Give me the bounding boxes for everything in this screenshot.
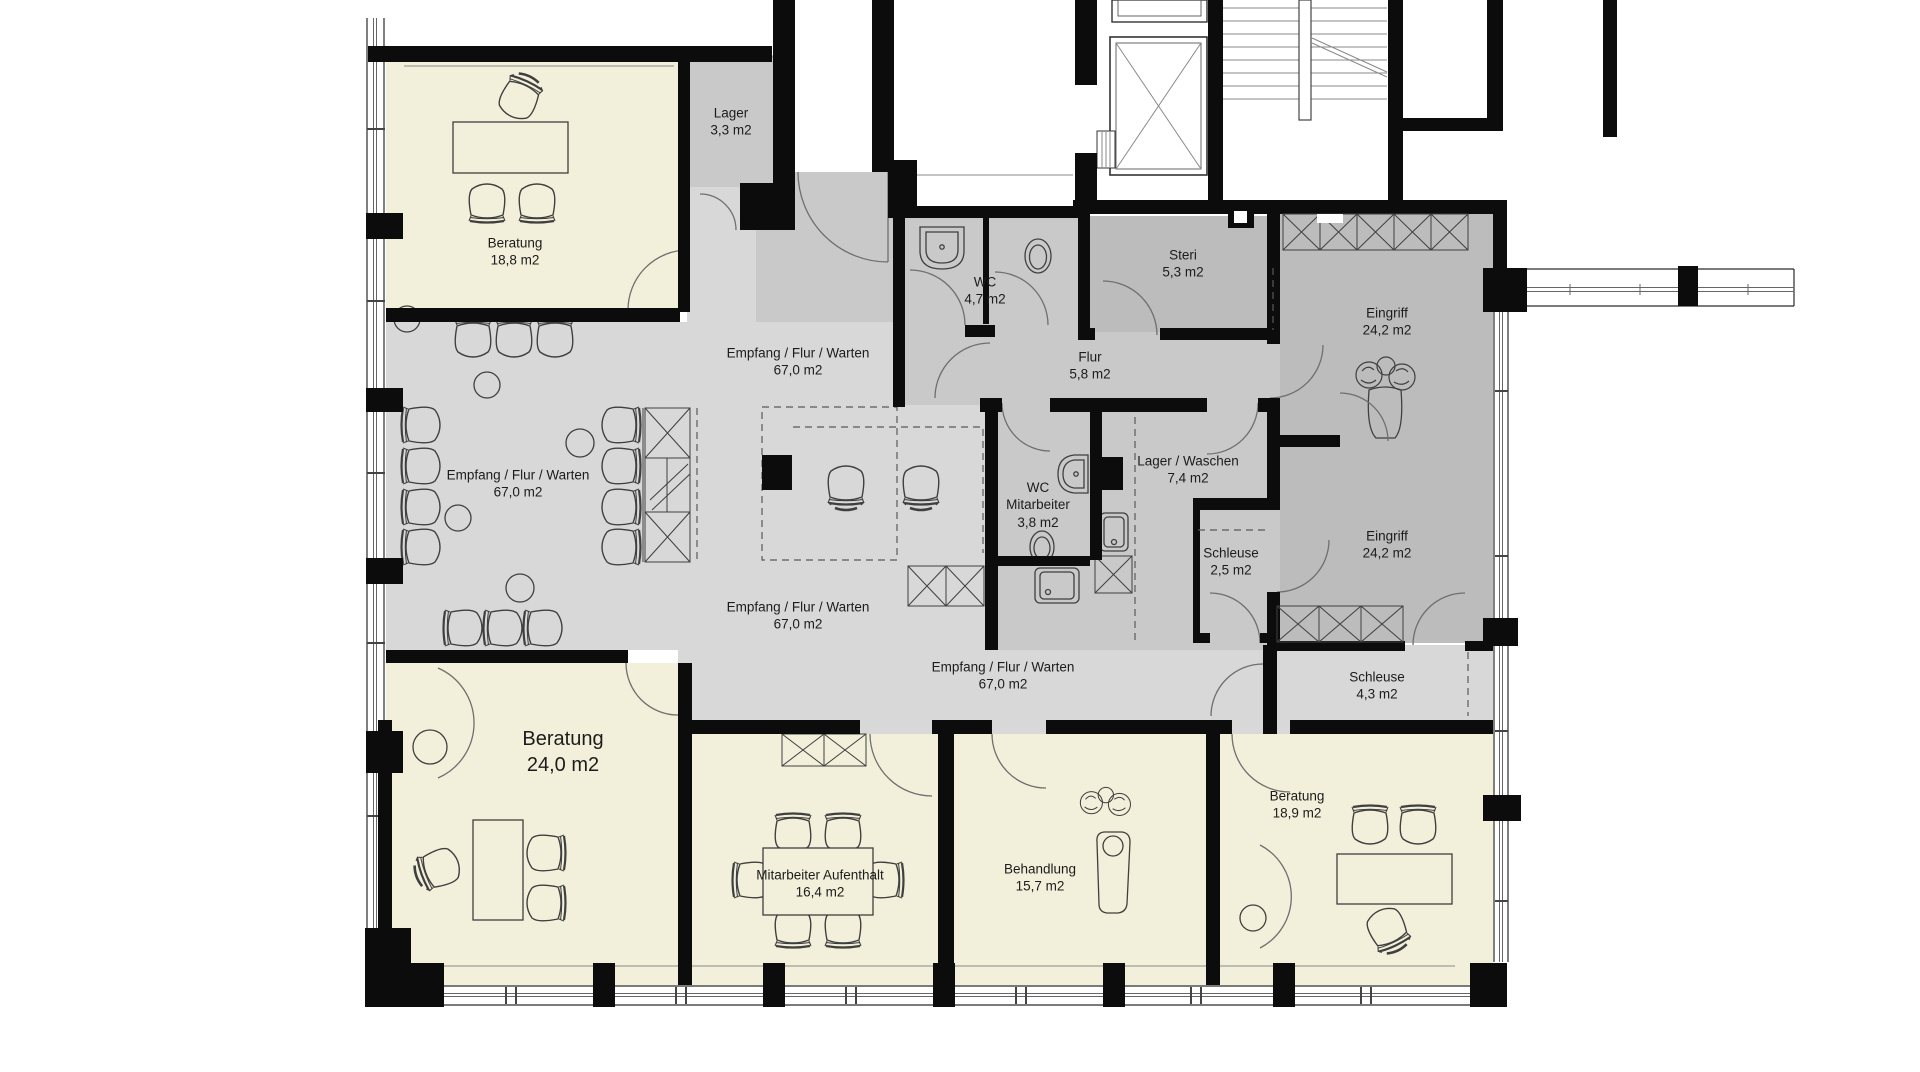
room-name: Eingriff bbox=[1363, 305, 1412, 322]
room-area: 15,7 m2 bbox=[1004, 878, 1076, 895]
room-name: Empfang / Flur / Warten bbox=[447, 467, 590, 484]
room-area: 67,0 m2 bbox=[727, 362, 870, 379]
room-name: Schleuse bbox=[1349, 669, 1405, 686]
staircase bbox=[1223, 0, 1387, 120]
room-area: 18,8 m2 bbox=[488, 252, 543, 269]
room-area: 67,0 m2 bbox=[932, 676, 1075, 693]
elevator bbox=[1097, 0, 1207, 175]
room-label-schleuse-gross: Schleuse 4,3 m2 bbox=[1349, 669, 1405, 704]
room-area: 2,5 m2 bbox=[1203, 562, 1259, 579]
room-name: WC bbox=[1006, 479, 1070, 496]
room-label-steri: Steri 5,3 m2 bbox=[1162, 247, 1203, 282]
room-name: Lager / Waschen bbox=[1137, 453, 1239, 470]
room-label-wc: WC 4,7 m2 bbox=[964, 274, 1005, 309]
room-label-wc-mitarbeiter: WC Mitarbeiter 3,8 m2 bbox=[1006, 479, 1070, 531]
room-label-behandlung: Behandlung 15,7 m2 bbox=[1004, 861, 1076, 896]
room-name: Schleuse bbox=[1203, 545, 1259, 562]
room-area: 24,0 m2 bbox=[522, 752, 603, 778]
room-label-beratung-top: Beratung 18,8 m2 bbox=[488, 235, 543, 270]
room-area: 3,8 m2 bbox=[1006, 514, 1070, 531]
room-name: Beratung bbox=[522, 726, 603, 752]
room-name: Beratung bbox=[488, 235, 543, 252]
room-label-flur: Flur 5,8 m2 bbox=[1069, 349, 1110, 384]
room-area: 24,2 m2 bbox=[1363, 545, 1412, 562]
wc-lobby bbox=[905, 332, 990, 405]
room-name: Empfang / Flur / Warten bbox=[727, 599, 870, 616]
room-area: 5,8 m2 bbox=[1069, 366, 1110, 383]
room-label-beratung-gross: Beratung 24,0 m2 bbox=[522, 726, 603, 778]
room-beratung-top bbox=[386, 62, 678, 310]
room-name: Mitarbeiter Aufenthalt bbox=[756, 867, 884, 884]
room-name: Empfang / Flur / Warten bbox=[932, 659, 1075, 676]
room-name: WC bbox=[964, 274, 1005, 291]
room-label-empfang-center: Empfang / Flur / Warten 67,0 m2 bbox=[727, 599, 870, 634]
room-label-lager-waschen: Lager / Waschen 7,4 m2 bbox=[1137, 453, 1239, 488]
room-area: 16,4 m2 bbox=[756, 884, 884, 901]
room-label-beratung-rechts: Beratung 18,9 m2 bbox=[1270, 788, 1325, 823]
room-area: 5,3 m2 bbox=[1162, 264, 1203, 281]
stair-rail bbox=[1299, 0, 1311, 120]
room-label-lager: Lager 3,3 m2 bbox=[710, 105, 751, 140]
room-area: 24,2 m2 bbox=[1363, 322, 1412, 339]
room-name: Lager bbox=[710, 105, 751, 122]
room-label-empfang-bottom: Empfang / Flur / Warten 67,0 m2 bbox=[932, 659, 1075, 694]
room-behandlung bbox=[952, 734, 1206, 985]
floor-plan: Beratung 18,8 m2 Lager 3,3 m2 Empfang / … bbox=[0, 0, 1920, 1072]
room-area: 67,0 m2 bbox=[727, 616, 870, 633]
room-label-eingriff-top: Eingriff 24,2 m2 bbox=[1363, 305, 1412, 340]
room-area: 18,9 m2 bbox=[1270, 805, 1325, 822]
room-name: Eingriff bbox=[1363, 528, 1412, 545]
room-name: Beratung bbox=[1270, 788, 1325, 805]
room-label-schleuse-klein: Schleuse 2,5 m2 bbox=[1203, 545, 1259, 580]
room-label-eingriff-bottom: Eingriff 24,2 m2 bbox=[1363, 528, 1412, 563]
room-name: Mitarbeiter bbox=[1006, 496, 1070, 513]
room-name: Behandlung bbox=[1004, 861, 1076, 878]
room-flur bbox=[980, 332, 1280, 398]
room-area: 7,4 m2 bbox=[1137, 470, 1239, 487]
shaft-upper bbox=[1112, 0, 1207, 22]
room-name: Steri bbox=[1162, 247, 1203, 264]
room-label-empfang-left: Empfang / Flur / Warten 67,0 m2 bbox=[447, 467, 590, 502]
room-area: 4,7 m2 bbox=[964, 291, 1005, 308]
room-area: 3,3 m2 bbox=[710, 122, 751, 139]
room-name: Flur bbox=[1069, 349, 1110, 366]
room-beratung-gross bbox=[386, 663, 678, 985]
room-area: 4,3 m2 bbox=[1349, 686, 1405, 703]
room-label-mitarbeiter-aufenthalt: Mitarbeiter Aufenthalt 16,4 m2 bbox=[756, 867, 884, 902]
room-name: Empfang / Flur / Warten bbox=[727, 345, 870, 362]
room-label-empfang-top: Empfang / Flur / Warten 67,0 m2 bbox=[727, 345, 870, 380]
floor-plan-drawing bbox=[0, 0, 1920, 1072]
room-area: 67,0 m2 bbox=[447, 484, 590, 501]
